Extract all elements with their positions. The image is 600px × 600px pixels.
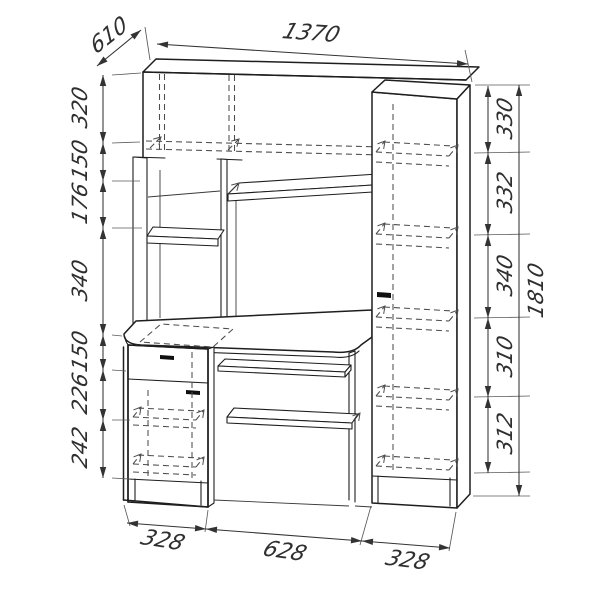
- dim-depth: 610: [87, 11, 131, 61]
- furniture-drawing: 1370 610 320 150 176 340 150 226 242 330…: [0, 0, 600, 600]
- dim-right-3: 310: [493, 333, 518, 379]
- left-inner-panel: [221, 159, 227, 333]
- pedestal-right-side: [208, 347, 214, 507]
- floor-line: [214, 500, 372, 507]
- dim-left-5: 226: [68, 370, 93, 416]
- cabinet-right-side: [457, 85, 470, 508]
- left-small-shelf: [147, 227, 224, 246]
- dim-left-2: 176: [68, 180, 93, 226]
- dim-bottom-0: 328: [137, 525, 189, 556]
- cabinet-door-handle[interactable]: [377, 292, 391, 298]
- middle-wide-shelf: [228, 174, 378, 201]
- right-tall-cabinet: [372, 80, 470, 508]
- dim-left-1: 150: [68, 137, 93, 183]
- dim-right-4: 312: [493, 410, 518, 456]
- dim-top-width: 1370: [279, 19, 343, 48]
- dim-overall-height: 1810: [524, 261, 549, 321]
- left-outer-panel: [133, 157, 147, 334]
- keyboard-tray[interactable]: [218, 359, 351, 377]
- dim-bottom-1: 628: [259, 536, 310, 566]
- dim-left-3: 340: [68, 257, 93, 303]
- left-pedestal: [124, 345, 215, 507]
- dim-right-2: 340: [493, 252, 518, 298]
- dim-bottom-2: 328: [382, 545, 433, 575]
- lower-middle-shelf: [227, 408, 360, 429]
- cabinet-front: [372, 92, 457, 508]
- dim-left-4: 150: [68, 328, 93, 374]
- desk-unit: [124, 59, 480, 508]
- dim-right-1: 332: [493, 169, 518, 215]
- dim-right-0: 330: [493, 95, 518, 141]
- dim-left-6: 242: [68, 424, 93, 470]
- drawing-sheet: 1370 610 320 150 176 340 150 226 242 330…: [0, 0, 600, 600]
- dim-left-0: 320: [68, 84, 93, 130]
